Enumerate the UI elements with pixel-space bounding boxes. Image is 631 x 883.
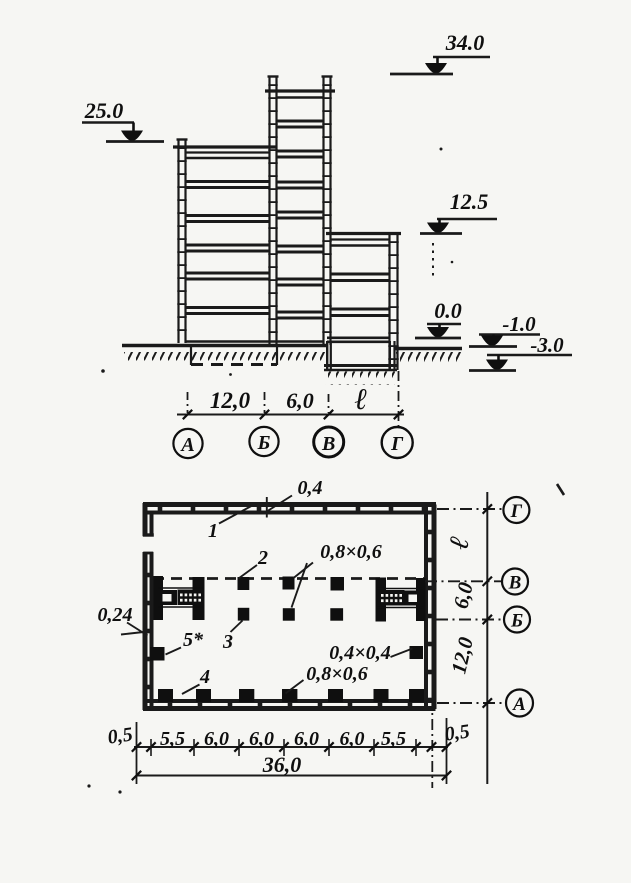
- svg-text:2: 2: [257, 547, 268, 569]
- svg-text:6,0: 6,0: [249, 728, 274, 750]
- svg-text:В: В: [321, 433, 335, 455]
- svg-text:1: 1: [208, 520, 218, 542]
- svg-text:25.0: 25.0: [84, 98, 124, 123]
- svg-text:0.0: 0.0: [434, 298, 462, 323]
- svg-text:В: В: [508, 573, 522, 594]
- svg-text:0,5: 0,5: [443, 720, 471, 745]
- svg-text:0,4: 0,4: [298, 477, 323, 499]
- svg-text:А: А: [179, 434, 194, 456]
- svg-text:А: А: [512, 694, 526, 715]
- svg-text:5,5: 5,5: [160, 728, 185, 750]
- svg-text:5*: 5*: [183, 629, 204, 651]
- svg-text:3: 3: [222, 631, 233, 653]
- svg-text:ℓ: ℓ: [355, 383, 368, 416]
- svg-text:36,0: 36,0: [262, 752, 302, 777]
- svg-text:6,0: 6,0: [294, 728, 319, 750]
- svg-text:12.5: 12.5: [450, 189, 489, 214]
- svg-text:6,0: 6,0: [340, 728, 365, 750]
- svg-text:5,5: 5,5: [381, 728, 406, 750]
- svg-text:34.0: 34.0: [445, 30, 485, 55]
- svg-text:6,0: 6,0: [286, 388, 314, 413]
- svg-text:0,8×0,6: 0,8×0,6: [306, 663, 367, 685]
- svg-text:0,5: 0,5: [106, 723, 134, 748]
- svg-text:Г: Г: [390, 433, 404, 455]
- svg-text:0,4×0,4: 0,4×0,4: [329, 642, 390, 664]
- svg-text:Г: Г: [510, 501, 523, 522]
- svg-text:6,0: 6,0: [204, 728, 229, 750]
- svg-text:Б: Б: [257, 432, 271, 454]
- svg-text:12,0: 12,0: [210, 388, 251, 413]
- svg-text:0,8×0,6: 0,8×0,6: [320, 541, 381, 563]
- svg-text:-3.0: -3.0: [530, 333, 564, 357]
- svg-text:Б: Б: [510, 611, 523, 632]
- svg-text:4: 4: [199, 666, 210, 688]
